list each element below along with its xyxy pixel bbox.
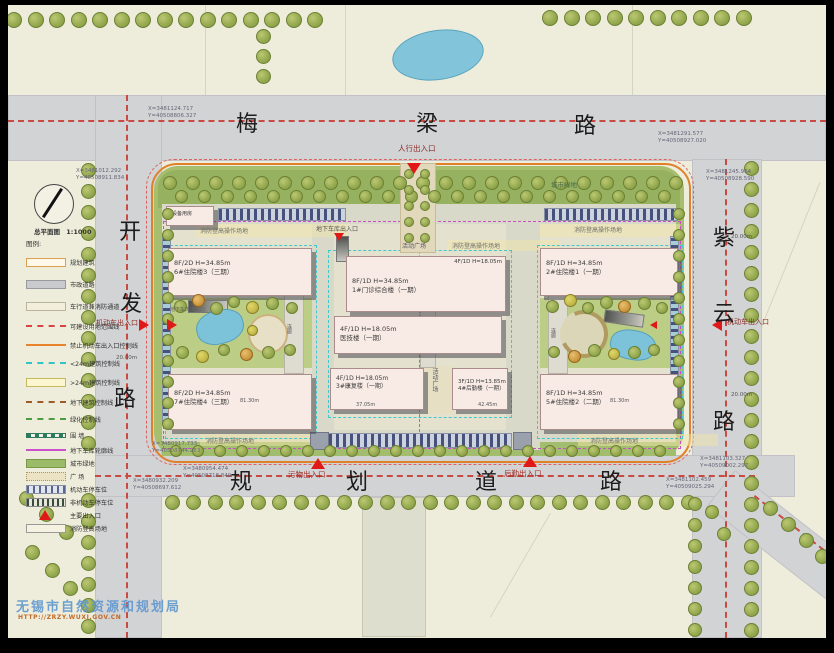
legend-swatch-green-control	[26, 418, 66, 420]
legend-swatch-underground-control	[26, 401, 66, 403]
coordinate-label: X=3481291.577Y=40508927.020	[658, 131, 706, 145]
parking-shelter	[310, 432, 329, 450]
building-name: 医技楼（一期）	[340, 334, 397, 343]
legend-swatch-municipal-road	[26, 280, 66, 289]
legend-item: <24m建筑控制线	[26, 357, 120, 369]
legend-swatch-wall	[26, 433, 66, 438]
legend-swatch-garage-outline	[26, 449, 66, 451]
legend-item: 广 场	[26, 470, 84, 482]
coordinate-label: X=3481245.964Y=40508928.590	[706, 169, 754, 183]
coordinate-label: X=3481124.717Y=40508806.327	[148, 106, 196, 120]
legend-item: 围 墙	[26, 429, 84, 441]
garage-entrance-label: 地下车库出入口	[316, 224, 358, 233]
building-equipment-room: 设备用房	[166, 206, 214, 226]
road-bottom-branch	[362, 497, 426, 637]
building-spec: 8F/1D H=34.85m	[352, 277, 420, 286]
legend-item: 规划建筑	[26, 256, 95, 268]
vehicle-entrance-marker	[139, 319, 149, 331]
road-width-label: 20.00m	[731, 392, 752, 398]
road-name-west: 发	[120, 286, 142, 318]
legend-item: 市政道路	[26, 278, 95, 290]
road-name-north: 梁	[416, 106, 438, 138]
building-spec: 4F/1D H=18.05m	[340, 325, 397, 334]
dimension-label: 81.30m	[610, 398, 629, 404]
corridor-label: 连廊	[286, 324, 293, 334]
legend-swatch-over24m-control	[26, 378, 66, 387]
legend-swatch-buildable-boundary	[26, 325, 66, 327]
legend-item: 可建设用地范围线	[26, 320, 120, 332]
building-wing-spec: 4F/1D H=18.05m	[454, 259, 502, 266]
legend-item: 禁止机动车出入口控制线	[26, 339, 138, 351]
parcel-line	[632, 5, 633, 95]
dimension-label: 81.30m	[240, 398, 259, 404]
fire-ops-label: 消防登高操作场地	[452, 241, 500, 250]
building-spec: 4F/1D H=18.05m	[336, 375, 388, 383]
parcel-line	[345, 5, 346, 95]
corridor-label: 连廊	[550, 328, 557, 338]
road-name-south: 道	[475, 464, 497, 496]
garage-entrance-marker	[334, 233, 344, 241]
legend-swatch-plaza	[26, 472, 66, 481]
frame-left	[0, 0, 8, 653]
legend-swatch-under24m-control	[26, 362, 66, 364]
pedestrian-entrance-marker	[407, 163, 421, 174]
building-6-inpatient-3: 8F/2D H=34.85m 6#住院楼3（三期）	[168, 248, 312, 296]
legend-item: 非机动车停车位	[26, 496, 113, 508]
waste-entrance-label: 污物出入口	[288, 469, 326, 480]
road-name-north: 梅	[236, 106, 258, 138]
site-plan-canvas: 设备用房 8F/2D H=34.85m 6#住院楼3（三期） 8F/1D H=3…	[0, 0, 834, 653]
building-medical-tech: 4F/1D H=18.05m 医技楼（一期）	[334, 316, 502, 354]
watermark-url: HTTP://ZRZY.WUXI.GOV.CN	[18, 614, 121, 621]
fire-ops-label: 消防登高操作场地	[574, 225, 622, 234]
bike-parking-strip	[328, 433, 512, 448]
frame-top	[0, 0, 834, 5]
garage-entrance-label-west: 地下车库出入口	[170, 306, 205, 313]
legend-item: 地下建筑控制线	[26, 396, 113, 408]
road-name-east: 紫	[713, 220, 735, 252]
road-name-east: 路	[713, 404, 735, 436]
pedestrian-entrance-label: 人行出入口	[398, 143, 436, 154]
parking-strip	[218, 208, 346, 221]
building-name: 4#后勤楼（一期）	[458, 386, 506, 393]
logistics-entrance-label: 后勤出入口	[504, 468, 542, 479]
road-name-south: 路	[600, 464, 622, 496]
building-spec: 8F/2D H=34.85m	[174, 389, 233, 398]
drawing-title-text: 总平面图	[34, 228, 60, 236]
legend-swatch-planned-building	[26, 258, 66, 267]
building-name: 5#住院楼2（二期）	[546, 398, 605, 407]
building-label: 设备用房	[172, 211, 192, 218]
legend-swatch-bike-parking	[26, 498, 66, 507]
parking-shelter	[513, 432, 532, 450]
plaza-label: 活动广场	[402, 241, 426, 250]
coordinate-label: X=3481103.327Y=40509002.297	[700, 456, 748, 470]
building-1-outpatient: 8F/1D H=34.85m 1#门诊综合楼（一期） 4F/1D H=18.05…	[346, 256, 506, 312]
building-5-inpatient-2: 8F/1D H=34.85m 5#住院楼2（二期）	[540, 374, 678, 430]
legend-swatch-main-entrance	[39, 510, 51, 520]
building-name: 2#住院楼1（一期）	[546, 268, 605, 277]
legend-item: 地下车库轮廓线	[26, 444, 113, 456]
fire-ops-label: 消防登高操作场地	[590, 436, 638, 445]
centerline-west	[126, 95, 128, 638]
drawing-scale: 1:1000	[66, 228, 91, 236]
vehicle-entrance-marker	[167, 319, 177, 331]
fire-ops-label: 消防登高操作场地	[206, 436, 254, 445]
road-name-south: 规	[230, 464, 252, 496]
legend-item: 绿化控制线	[26, 413, 101, 425]
road-name-east: 云	[713, 296, 735, 328]
building-spec: 8F/1D H=34.85m	[546, 389, 605, 398]
legend-swatch-no-vehicle-access	[26, 344, 66, 346]
legend-item: 主要出入口	[26, 509, 101, 521]
legend-item: >24m建筑控制线	[26, 376, 120, 388]
coordinate-label: X=3481012.292Y=40508911.834	[76, 168, 124, 182]
road-name-west: 开	[119, 214, 141, 246]
road-name-north: 路	[574, 108, 596, 140]
legend-swatch-fire-lane	[26, 302, 66, 311]
north-compass-icon	[34, 184, 74, 224]
coordinate-label: X=3480954.474Y=40508718.840	[183, 466, 231, 480]
coordinate-label: X=3480917.733Y=40508744.283	[152, 441, 200, 455]
building-3-rehab: 4F/1D H=18.05m 3#康复楼（一期）	[330, 368, 424, 410]
legend-item: 机动车停车位	[26, 483, 107, 495]
entrance-walkway	[400, 163, 436, 253]
frame-bottom	[0, 638, 834, 653]
frame-right	[826, 0, 834, 653]
building-name: 7#住院楼4（三期）	[174, 398, 233, 407]
coordinate-label: X=3481102.459Y=40509025.294	[666, 477, 714, 491]
legend-title: 图例:	[26, 238, 41, 248]
watermark-agency: 无锡市自然资源和规划局	[16, 596, 181, 615]
dimension-label: 37.05m	[356, 402, 375, 408]
waste-entrance-marker	[311, 458, 325, 469]
dimension-label: 42.45m	[478, 402, 497, 408]
legend-swatch-car-parking	[26, 485, 66, 494]
fire-ops-label: 消防登高操作场地	[200, 226, 248, 235]
parcel-line	[205, 5, 206, 95]
drawing-title: 总平面图 1:1000	[34, 226, 91, 236]
building-spec: 8F/1D H=34.85m	[546, 259, 605, 268]
legend-item: 车行道兼消防通道	[26, 300, 120, 312]
legend-swatch-fire-site	[26, 524, 66, 533]
building-2-inpatient-1: 8F/1D H=34.85m 2#住院楼1（一期）	[540, 248, 678, 296]
building-spec: 8F/2D H=34.85m	[174, 259, 233, 268]
coordinate-label: X=3480932.209Y=40508697.612	[133, 478, 181, 492]
plaza-label-vertical: 活动广场	[430, 368, 439, 412]
legend-item: 消防登高场地	[26, 522, 107, 534]
road-name-south: 划	[346, 464, 368, 496]
garden-circle-plaza	[248, 314, 288, 354]
building-name: 6#住院楼3（三期）	[174, 268, 233, 277]
building-name: 1#门诊综合楼（一期）	[352, 286, 420, 295]
legend-item: 城市绿地	[26, 457, 95, 469]
legend-swatch-city-green	[26, 459, 66, 468]
parking-strip	[544, 208, 678, 221]
logistics-entrance-marker	[523, 456, 537, 467]
building-name: 3#康复楼（一期）	[336, 383, 388, 391]
vehicle-entrance-marker	[650, 321, 657, 329]
city-green-label: 城市绿地	[551, 179, 577, 189]
